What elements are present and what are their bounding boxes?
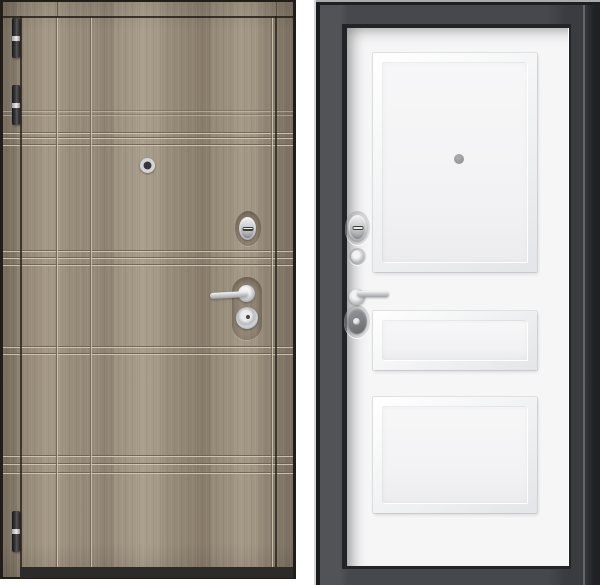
hinge [12,511,20,552]
groove-line-horizontal [3,264,293,266]
groove-line-horizontal [3,353,293,355]
keyhole [246,315,250,319]
groove-line-horizontal [3,137,293,139]
groove-line-horizontal [3,110,293,112]
groove-line-vertical [90,17,92,568]
hinge-chrome-band [12,103,20,108]
lintel-seam [57,2,58,17]
door-panel-bottom [373,397,537,513]
door-handle [357,291,389,297]
groove-line-horizontal [3,132,293,134]
groove-line-horizontal [3,455,293,457]
frame-bevel-highlight [583,5,585,585]
hinge-chrome-band [12,529,20,534]
door-panel-middle [373,311,537,370]
groove-line-horizontal [3,144,293,146]
small-cylinder [351,250,364,263]
groove-line-horizontal [3,346,293,348]
groove-line-horizontal [3,463,293,465]
peephole [454,154,464,164]
groove-line-horizontal [3,250,293,252]
thumbturn-cylinder-lock [348,215,367,241]
groove-line-horizontal [3,257,293,259]
groove-line-horizontal [3,114,293,116]
door-product-image [0,0,600,585]
hinge-chrome-band [12,36,20,41]
frame-lintel-joint-line [3,16,293,18]
lintel-seam [276,2,277,17]
thumbturn-cylinder-lock [239,217,256,240]
hinge [12,85,20,125]
panel-field [383,321,527,360]
exterior-door-view [0,0,296,579]
frame-outer-edge [316,2,320,585]
frame-outer-edge [314,2,600,5]
threshold [20,567,293,578]
thumbturn-slot [352,226,363,230]
leaf-edge-line [275,16,277,569]
thumbturn-slot [242,227,253,231]
leaf-edge-line [20,16,22,569]
panel-field [383,407,527,503]
hinge [12,18,20,58]
escutcheon-knob [353,318,360,325]
groove-line-vertical [271,17,273,568]
groove-line-vertical [56,17,58,568]
groove-line-horizontal [3,472,293,474]
interior-door-view [314,0,600,585]
peephole [140,158,155,173]
